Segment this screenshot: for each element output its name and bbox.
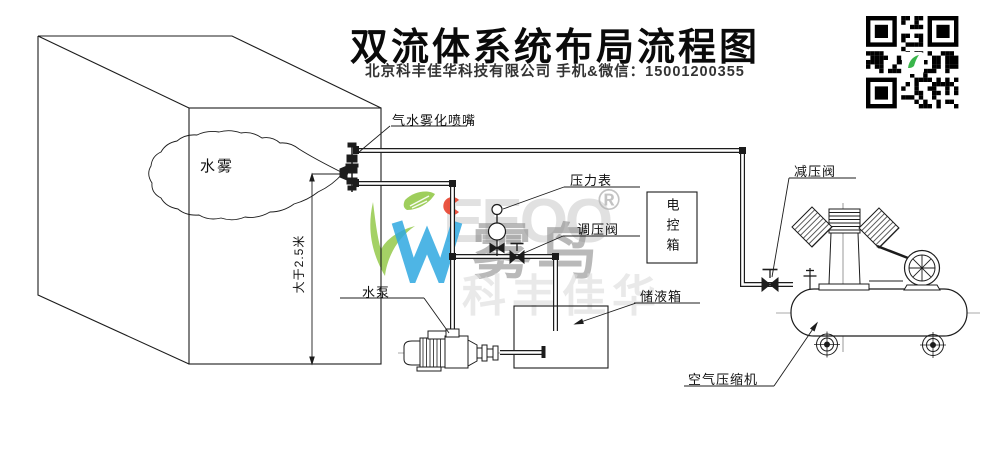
nozzle-label: 气水雾化喷嘴 (392, 110, 476, 129)
air-filter-left (792, 207, 832, 247)
control-box-label: 电控箱 (647, 192, 697, 263)
air-compressor-drawing (776, 203, 980, 358)
qr-code (866, 16, 960, 110)
air-compressor-label: 空气压缩机 (688, 369, 758, 388)
pressure-gauge (489, 205, 506, 257)
tank-valve (804, 268, 817, 289)
compressor-tank (791, 289, 967, 336)
regulating-valve-label: 调压阀 (577, 219, 619, 238)
storage-tank (514, 306, 608, 368)
water-pump-drawing (404, 329, 498, 371)
company-contact-subtitle: 北京科丰佳华科技有限公司 手机&微信：15001200355 (330, 60, 780, 81)
room-box (38, 36, 381, 364)
pressure-gauge-label: 压力表 (570, 170, 612, 189)
mist-cloud (149, 131, 343, 220)
air-filter-right (859, 208, 899, 248)
compressor-motor (904, 251, 940, 291)
storage-tank-label: 储液箱 (640, 286, 682, 305)
drive-belt (877, 246, 908, 258)
water-pump-label: 水泵 (362, 282, 390, 301)
mist-label: 水雾 (200, 155, 234, 176)
reducing-valve (762, 270, 778, 292)
regulating-valve (510, 244, 524, 264)
water-pipe (357, 184, 556, 337)
reducing-valve-label: 减压阀 (794, 161, 836, 180)
height-dimension-label: 大于2.5米 (290, 222, 306, 306)
height-dimension (310, 174, 348, 364)
flow-diagram-page: EEOO 雾鸟 ® 科丰佳华 双流体系统布局流程图 北京科丰佳华科技有限公司 手… (0, 0, 992, 460)
